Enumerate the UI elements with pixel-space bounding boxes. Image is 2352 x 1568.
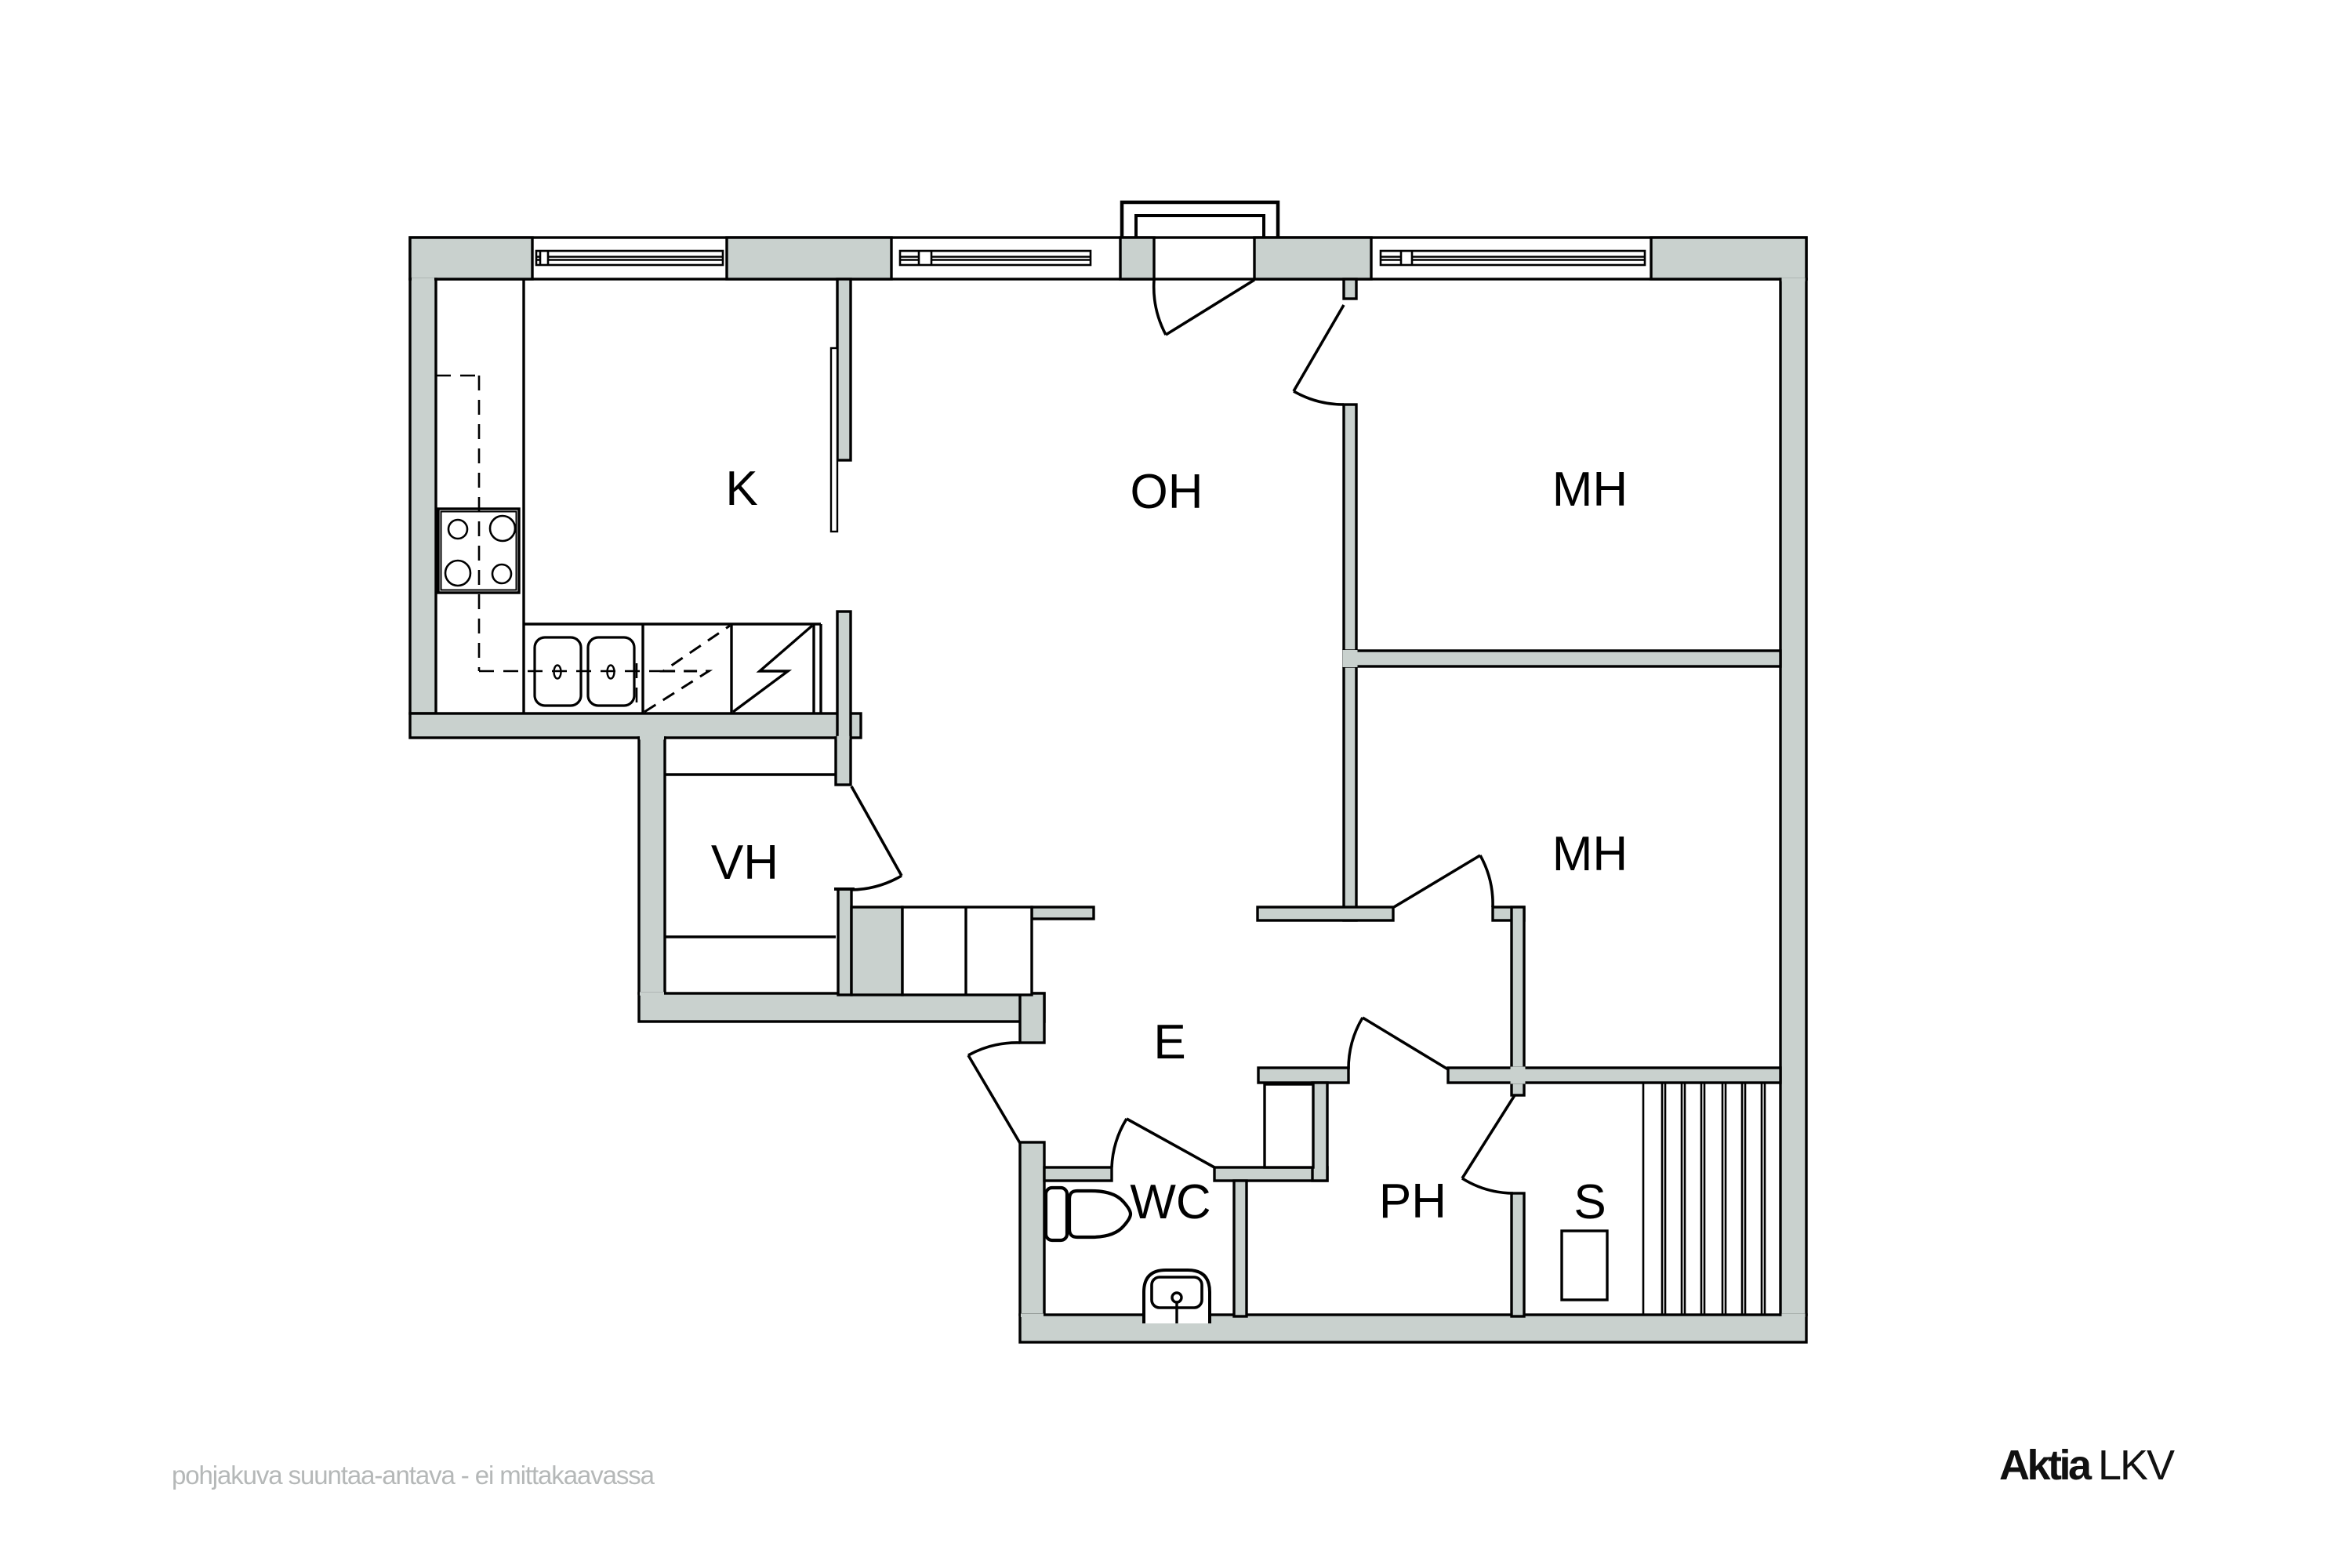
svg-text:LKV: LKV [2098,1442,2175,1489]
svg-text:Aktia: Aktia [1999,1442,2092,1489]
svg-text:MH: MH [1552,463,1628,517]
svg-text:MH: MH [1552,827,1628,881]
svg-text:PH: PH [1379,1174,1446,1229]
svg-text:K: K [725,462,757,516]
svg-text:WC: WC [1130,1175,1210,1229]
svg-text:S: S [1573,1175,1606,1229]
svg-text:VH: VH [711,836,779,890]
svg-text:E: E [1153,1015,1185,1069]
svg-text:pohjakuva suuntaa-antava - ei: pohjakuva suuntaa-antava - ei mittakaava… [172,1461,655,1490]
svg-text:OH: OH [1131,465,1203,519]
